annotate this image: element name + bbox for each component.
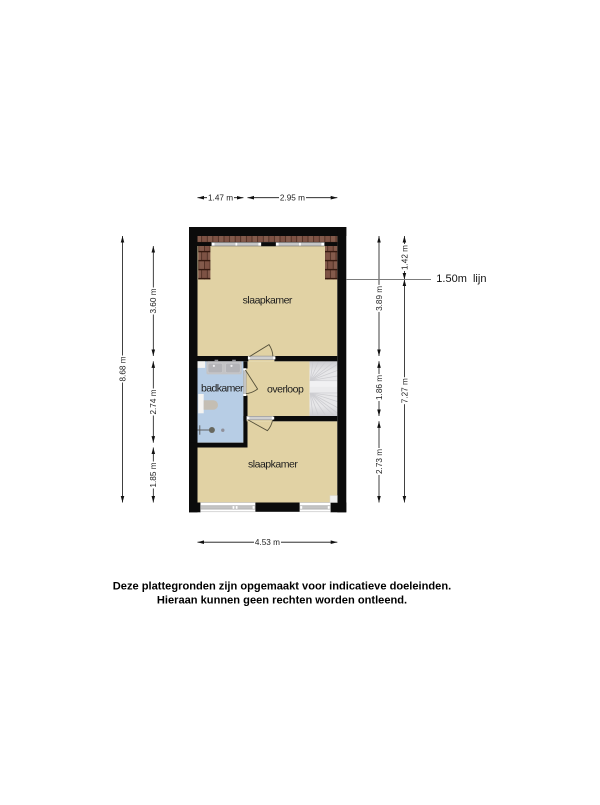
svg-text:slaapkamer: slaapkamer <box>243 294 293 306</box>
svg-text:8.68 m: 8.68 m <box>118 356 127 381</box>
svg-text:1.42 m: 1.42 m <box>400 245 409 270</box>
svg-text:1.50m lijn: 1.50m lijn <box>436 273 486 285</box>
svg-text:1.85 m: 1.85 m <box>149 462 158 487</box>
svg-text:badkamer: badkamer <box>201 383 244 395</box>
svg-text:3.89 m: 3.89 m <box>375 286 384 311</box>
svg-text:1.47 m: 1.47 m <box>208 194 233 203</box>
svg-text:Deze plattegronden zijn opgema: Deze plattegronden zijn opgemaakt voor i… <box>113 580 451 592</box>
svg-text:Hieraan kunnen geen rechten wo: Hieraan kunnen geen rechten worden ontle… <box>157 595 407 607</box>
svg-text:3.60 m: 3.60 m <box>149 288 158 313</box>
svg-text:2.74 m: 2.74 m <box>149 389 158 414</box>
svg-text:2.73 m: 2.73 m <box>375 449 384 474</box>
svg-text:7.27 m: 7.27 m <box>400 378 409 403</box>
svg-text:slaapkamer: slaapkamer <box>248 458 298 470</box>
svg-text:4.53 m: 4.53 m <box>255 538 280 547</box>
svg-text:1.86 m: 1.86 m <box>375 375 384 400</box>
svg-text:2.95 m: 2.95 m <box>280 194 305 203</box>
svg-text:overloop: overloop <box>267 384 304 396</box>
